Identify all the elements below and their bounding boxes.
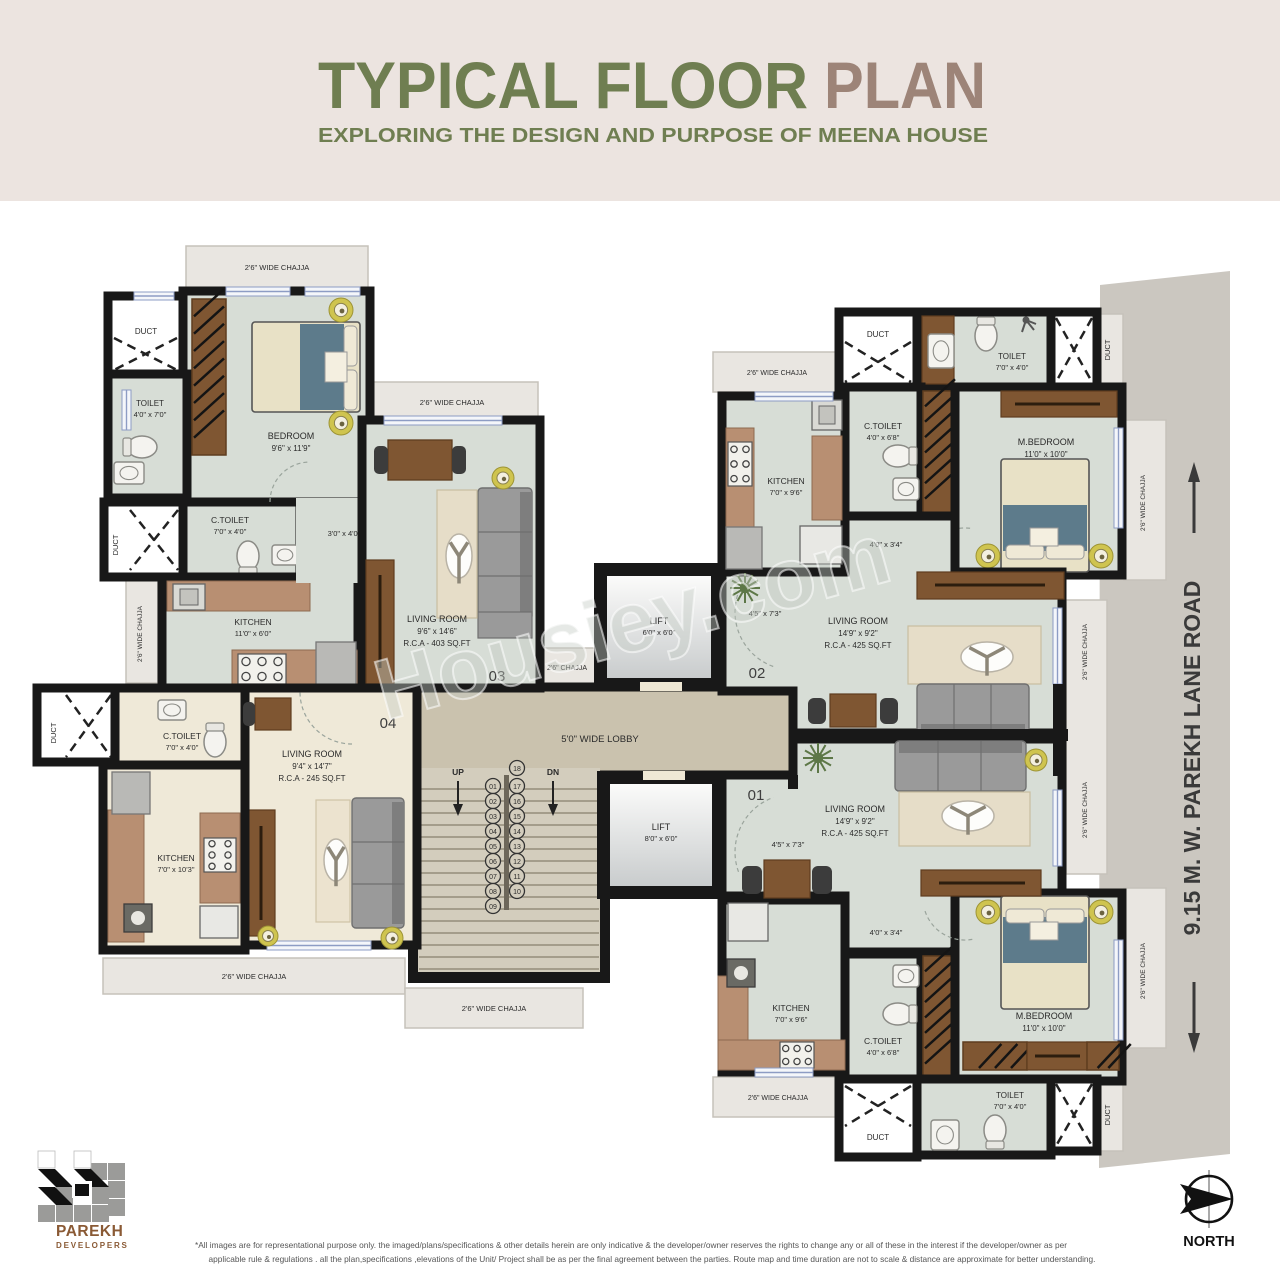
svg-text:UP: UP: [452, 767, 464, 777]
svg-text:7'0" x 4'0": 7'0" x 4'0": [214, 527, 247, 536]
svg-text:7'0" x 9'6": 7'0" x 9'6": [770, 488, 803, 497]
svg-text:4'0" x 3'4": 4'0" x 3'4": [870, 928, 903, 937]
svg-text:16: 16: [513, 799, 521, 806]
svg-text:PLAN: PLAN: [824, 48, 986, 122]
svg-text:KITCHEN: KITCHEN: [772, 1003, 809, 1013]
svg-text:DUCT: DUCT: [1103, 339, 1112, 360]
svg-text:LIFT: LIFT: [652, 822, 671, 832]
svg-text:7'0" x 4'0": 7'0" x 4'0": [166, 743, 199, 752]
svg-text:2'6" WIDE CHAJJA: 2'6" WIDE CHAJJA: [1140, 474, 1147, 531]
svg-text:PAREKH: PAREKH: [56, 1223, 123, 1240]
svg-text:DUCT: DUCT: [1103, 1104, 1112, 1125]
svg-text:07: 07: [489, 874, 497, 881]
svg-text:3'0" x 4'0": 3'0" x 4'0": [328, 529, 361, 538]
svg-text:14'9" x 9'2": 14'9" x 9'2": [835, 817, 875, 826]
svg-text:DEVELOPERS: DEVELOPERS: [56, 1241, 129, 1250]
svg-text:C.TOILET: C.TOILET: [864, 1036, 902, 1046]
svg-text:9.15 M. W. PAREKH LANE ROAD: 9.15 M. W. PAREKH LANE ROAD: [1179, 581, 1205, 936]
svg-text:2'6" WIDE CHAJJA: 2'6" WIDE CHAJJA: [748, 1095, 809, 1102]
svg-text:7'0" x 9'6": 7'0" x 9'6": [775, 1015, 808, 1024]
svg-text:2'6" WIDE CHAJJA: 2'6" WIDE CHAJJA: [420, 398, 485, 407]
svg-text:2'6" WIDE CHAJJA: 2'6" WIDE CHAJJA: [245, 263, 310, 272]
svg-text:DN: DN: [547, 767, 559, 777]
svg-text:7'0" x 10'3": 7'0" x 10'3": [158, 865, 195, 874]
svg-text:9'6" x 11'9": 9'6" x 11'9": [272, 444, 311, 453]
svg-text:11'0" x 6'0": 11'0" x 6'0": [235, 629, 272, 638]
svg-text:TOILET: TOILET: [136, 399, 164, 408]
svg-text:11'0" x 10'0": 11'0" x 10'0": [1024, 450, 1067, 459]
svg-text:14'9" x 9'2": 14'9" x 9'2": [838, 629, 878, 638]
svg-text:DUCT: DUCT: [111, 534, 120, 555]
svg-text:4'0" x 6'8": 4'0" x 6'8": [867, 433, 900, 442]
svg-text:DUCT: DUCT: [867, 330, 889, 339]
svg-text:4'5" x 7'3": 4'5" x 7'3": [772, 840, 805, 849]
svg-text:M.BEDROOM: M.BEDROOM: [1016, 1011, 1073, 1021]
svg-text:09: 09: [489, 904, 497, 911]
svg-text:DUCT: DUCT: [49, 722, 58, 743]
svg-text:14: 14: [513, 829, 521, 836]
svg-text:5'0" WIDE LOBBY: 5'0" WIDE LOBBY: [561, 734, 639, 745]
svg-text:2'6" WIDE CHAJJA: 2'6" WIDE CHAJJA: [1082, 623, 1089, 680]
svg-text:8'0" x 6'0": 8'0" x 6'0": [645, 834, 678, 843]
svg-text:06: 06: [489, 859, 497, 866]
svg-text:12: 12: [513, 859, 521, 866]
svg-text:applicable rule & regulations: applicable rule & regulations . all the …: [209, 1254, 1096, 1264]
svg-text:02: 02: [749, 665, 766, 682]
svg-text:R.C.A - 425 SQ.FT: R.C.A - 425 SQ.FT: [821, 829, 888, 838]
svg-text:2'6" WIDE CHAJJA: 2'6" WIDE CHAJJA: [222, 972, 287, 981]
svg-text:2'6" WIDE CHAJJA: 2'6" WIDE CHAJJA: [1082, 781, 1089, 838]
svg-text:15: 15: [513, 814, 521, 821]
svg-text:KITCHEN: KITCHEN: [157, 853, 194, 863]
svg-text:M.BEDROOM: M.BEDROOM: [1018, 437, 1075, 447]
svg-text:NORTH: NORTH: [1183, 1234, 1235, 1250]
svg-text:13: 13: [513, 844, 521, 851]
svg-text:05: 05: [489, 844, 497, 851]
svg-text:LIVING ROOM: LIVING ROOM: [828, 616, 888, 626]
svg-text:17: 17: [513, 784, 521, 791]
svg-text:BEDROOM: BEDROOM: [268, 431, 315, 441]
svg-text:7'0" x 4'0": 7'0" x 4'0": [994, 1102, 1027, 1111]
svg-text:*All images are for representa: *All images are for representational pur…: [195, 1240, 1067, 1250]
svg-text:LIVING ROOM: LIVING ROOM: [282, 749, 342, 759]
svg-text:2'6" WIDE CHAJJA: 2'6" WIDE CHAJJA: [1140, 942, 1147, 999]
svg-text:4'0" x 7'0": 4'0" x 7'0": [134, 410, 167, 419]
svg-text:TOILET: TOILET: [998, 352, 1026, 361]
svg-text:03: 03: [489, 814, 497, 821]
svg-text:2'6" WIDE CHAJJA: 2'6" WIDE CHAJJA: [747, 370, 808, 377]
svg-text:01: 01: [748, 787, 765, 804]
svg-text:4'0" x 6'8": 4'0" x 6'8": [867, 1048, 900, 1057]
svg-text:2'6" WIDE CHAJJA: 2'6" WIDE CHAJJA: [137, 605, 144, 662]
svg-text:EXPLORING THE DESIGN AND PURPO: EXPLORING THE DESIGN AND PURPOSE OF MEEN…: [318, 125, 988, 147]
svg-text:04: 04: [489, 829, 497, 836]
svg-text:C.TOILET: C.TOILET: [211, 515, 249, 525]
svg-text:01: 01: [489, 784, 497, 791]
svg-text:C.TOILET: C.TOILET: [864, 421, 902, 431]
svg-text:18: 18: [513, 766, 521, 773]
svg-text:DUCT: DUCT: [867, 1133, 889, 1142]
svg-text:C.TOILET: C.TOILET: [163, 731, 201, 741]
svg-text:R.C.A - 245 SQ.FT: R.C.A - 245 SQ.FT: [278, 774, 345, 783]
svg-text:R.C.A - 425 SQ.FT: R.C.A - 425 SQ.FT: [824, 641, 891, 650]
svg-text:02: 02: [489, 799, 497, 806]
svg-text:9'4" x 14'7": 9'4" x 14'7": [292, 762, 332, 771]
svg-text:11: 11: [513, 874, 520, 881]
svg-text:10: 10: [513, 889, 521, 896]
svg-text:2'6" WIDE CHAJJA: 2'6" WIDE CHAJJA: [462, 1004, 527, 1013]
svg-text:DUCT: DUCT: [135, 327, 157, 336]
svg-text:11'0" x 10'0": 11'0" x 10'0": [1022, 1024, 1065, 1033]
svg-text:TYPICAL FLOOR: TYPICAL FLOOR: [318, 48, 808, 122]
svg-text:LIVING ROOM: LIVING ROOM: [825, 804, 885, 814]
svg-text:KITCHEN: KITCHEN: [767, 476, 804, 486]
svg-text:08: 08: [489, 889, 497, 896]
svg-text:7'0" x 4'0": 7'0" x 4'0": [996, 363, 1029, 372]
svg-text:TOILET: TOILET: [996, 1091, 1024, 1100]
svg-text:KITCHEN: KITCHEN: [234, 617, 271, 627]
